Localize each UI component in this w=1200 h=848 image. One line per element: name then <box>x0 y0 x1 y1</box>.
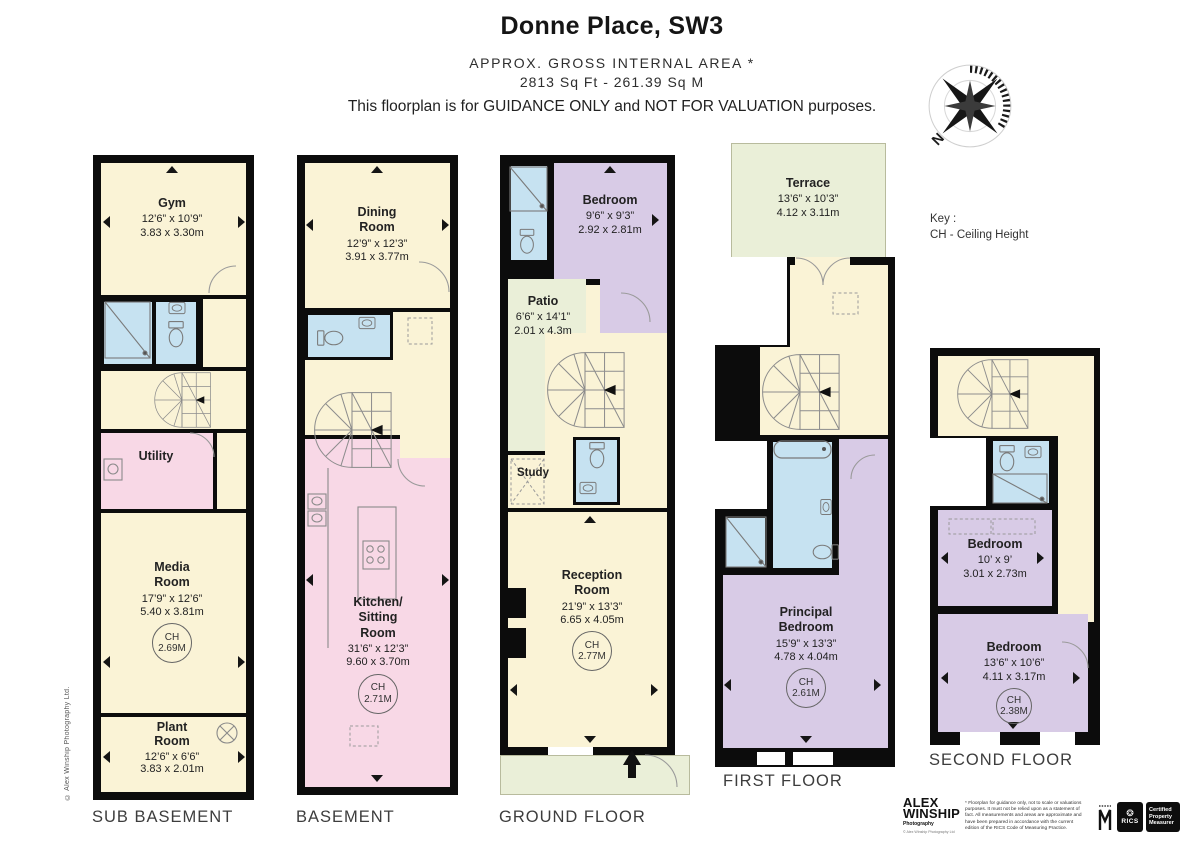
ceiling-height-badge: CH2.38M <box>996 688 1032 724</box>
rics-crest-icon: ❂ <box>1126 809 1134 818</box>
room-sub-hall-c <box>217 433 246 509</box>
room-sub-hall-b <box>101 371 246 429</box>
room-first-bathroom <box>770 439 835 571</box>
room-sub-hall-a <box>203 299 246 367</box>
area-values: 2813 Sq Ft - 261.39 Sq M <box>312 74 912 90</box>
room-second-shower <box>990 438 1052 506</box>
label-media: Media Room 17’9” x 12’6” 5.40 x 3.81m CH… <box>117 560 227 663</box>
label-reception: Reception Room 21’9” x 13’3” 6.65 x 4.05… <box>537 568 647 671</box>
wall-divider <box>152 299 156 367</box>
measurer-m-logo <box>1097 801 1113 832</box>
floor-label-sub-basement: SUB BASEMENT <box>92 808 233 827</box>
lightwell <box>715 257 787 345</box>
ceiling-height-badge: CH2.71M <box>358 674 398 714</box>
ceiling-height-badge: CH2.69M <box>152 623 192 663</box>
lightwell <box>930 438 986 506</box>
key-entry: CH - Ceiling Height <box>930 228 1028 244</box>
label-principal: Principal Bedroom 15’9” x 13’3” 4.78 x 4… <box>751 605 861 708</box>
lightwell <box>715 441 767 509</box>
ceiling-height-badge: CH2.61M <box>786 668 826 708</box>
certified-property-measurer-badge: Certified Property Measurer <box>1146 802 1180 832</box>
room-ground-bedroom-hall <box>600 279 667 333</box>
label-gym: Gym 12’6” x 10’9” 3.83 x 3.30m <box>117 196 227 240</box>
room-basement-wc <box>305 312 393 360</box>
key-title: Key : <box>930 212 1028 228</box>
label-second-bedroom2: Bedroom 13’6” x 10’6” 4.11 x 3.17m CH2.3… <box>959 640 1069 724</box>
label-dining: Dining Room 12’9” x 12’3” 3.91 x 3.77m <box>322 205 432 264</box>
room-basement-landing-notch <box>400 430 450 458</box>
room-sub-bathroom <box>101 299 199 367</box>
brand-sub: Photography <box>903 821 961 827</box>
room-utility <box>101 433 213 509</box>
window-gap <box>548 747 593 755</box>
window-gap <box>1040 732 1075 745</box>
label-utility: Utility <box>116 449 196 466</box>
wall-chimney <box>504 628 526 658</box>
label-kitchen: Kitchen/ Sitting Room 31’6” x 12’3” 9.60… <box>323 595 433 714</box>
brand-copyright: © Alex Winship Photography Ltd <box>903 830 961 834</box>
key-block: Key : CH - Ceiling Height <box>930 212 1028 243</box>
window-gap <box>960 732 1000 745</box>
window-gap <box>757 752 785 765</box>
label-patio: Patio 6’6” x 14’1” 2.01 x 4.3m <box>500 294 586 338</box>
label-plant: Plant Room 12’6” x 6’6” 3.83 x 2.01m <box>117 720 227 776</box>
footer-disclaimer: * Floorplan for guidance only, not to sc… <box>965 801 1087 832</box>
room-ground-wc <box>573 437 620 505</box>
guidance-note: This floorplan is for GUIDANCE ONLY and … <box>262 98 962 116</box>
window-gap <box>793 752 833 765</box>
brand-name-bottom: WINSHIP <box>903 808 961 819</box>
floor-label-first: FIRST FLOOR <box>723 772 843 791</box>
room-first-landing-a <box>790 265 888 347</box>
rics-logo: ❂ RICS <box>1117 802 1143 832</box>
label-study: Study <box>505 466 561 482</box>
label-second-bedroom1: Bedroom 10’ x 9’ 3.01 x 2.73m <box>940 537 1050 581</box>
floor-label-basement: BASEMENT <box>296 808 395 827</box>
area-caption: APPROX. GROSS INTERNAL AREA * <box>312 55 912 71</box>
label-ground-bedroom: Bedroom 9’6” x 9’3” 2.92 x 2.81m <box>555 193 665 237</box>
wall-chimney <box>504 588 526 618</box>
page-title: Donne Place, SW3 <box>312 12 912 41</box>
compass-rose: N <box>924 60 1016 152</box>
room-second-stairs <box>938 356 1058 436</box>
floorplan-page: Donne Place, SW3 APPROX. GROSS INTERNAL … <box>0 0 1200 848</box>
room-first-landing-b <box>760 347 888 435</box>
compass-north-label: N <box>929 130 948 149</box>
room-patio-lower <box>508 351 545 451</box>
front-garden <box>500 755 690 795</box>
floor-label-second: SECOND FLOOR <box>929 751 1073 770</box>
brand-block: ALEX WINSHIP Photography © Alex Winship … <box>903 797 961 834</box>
room-first-shower <box>723 515 768 570</box>
side-copyright: © Alex Winship Photography Ltd. <box>64 645 71 800</box>
room-principal-entry <box>839 439 888 575</box>
room-ground-shower <box>508 163 550 263</box>
room-ground-stairs <box>545 333 667 433</box>
label-terrace: Terrace 13’6” x 10’3” 4.12 x 3.11m <box>753 176 863 220</box>
floor-label-ground: GROUND FLOOR <box>499 808 646 827</box>
room-second-landing <box>1058 356 1094 622</box>
header: Donne Place, SW3 APPROX. GROSS INTERNAL … <box>312 12 912 90</box>
ceiling-height-badge: CH2.77M <box>572 631 612 671</box>
